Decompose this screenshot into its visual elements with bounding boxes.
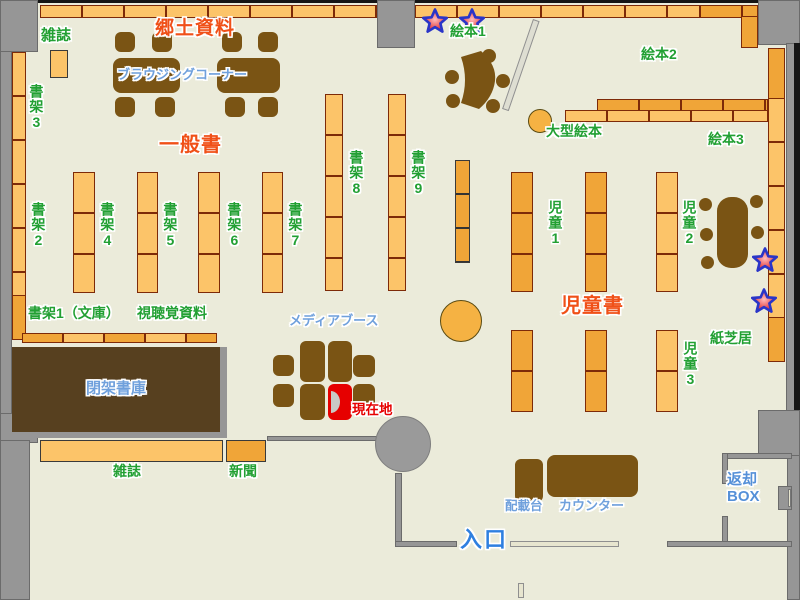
return-slot — [788, 489, 791, 507]
media-booth-label: メディアブース — [289, 314, 378, 328]
bookshelf-6 — [198, 172, 220, 293]
current-location-label: 現在地 — [352, 403, 393, 418]
round-table — [440, 300, 482, 342]
current-location-booth — [328, 384, 352, 420]
shelf9-label: 書架9 — [410, 150, 425, 197]
browsing-corner-label: ブラウジングコーナー — [117, 68, 247, 82]
wall-low-partition — [267, 436, 379, 441]
magazines-top-label: 雑誌 — [41, 28, 71, 45]
ehon1-label: 絵本1 — [450, 24, 486, 39]
magazine-shelf-top — [50, 50, 68, 78]
stool — [445, 70, 459, 84]
media-booth-seat — [273, 384, 294, 407]
shelf3-label: 書架3 — [28, 84, 43, 131]
children-books-label: 児童書 — [561, 295, 624, 317]
shelf2-label: 書架2 — [30, 202, 45, 249]
bookshelf-av-row — [22, 333, 217, 343]
wall-return-alcove-right — [787, 455, 800, 600]
current-location-seat — [331, 391, 340, 413]
bookshelf-left-col — [12, 52, 26, 297]
sorting-stand-label: 配載台 — [505, 500, 543, 514]
chair — [258, 97, 278, 117]
bookshelf-corner-hang — [741, 16, 758, 48]
bookshelf-4 — [73, 172, 95, 293]
bookshelf-8 — [325, 94, 343, 291]
children2-label: 児童2 — [681, 200, 696, 247]
wall-diagonal-partition — [502, 19, 540, 111]
bookshelf-7 — [262, 172, 283, 293]
children-shelf-1b — [585, 172, 607, 292]
stool — [751, 226, 764, 239]
audiovisual-label: 視聴覚資料 — [137, 306, 207, 321]
children-table — [717, 197, 748, 268]
library-floor-map: 閉架書庫 — [0, 0, 800, 600]
wall-top-middle — [377, 0, 415, 48]
chair — [155, 97, 175, 117]
star-icon — [752, 247, 778, 273]
stool — [486, 99, 500, 113]
wall-return-alcove-top — [722, 453, 792, 459]
star-icon — [422, 8, 448, 34]
media-booth-seat — [273, 355, 294, 376]
star-icon — [751, 288, 777, 314]
wall-entrance-right — [667, 541, 792, 547]
stool — [699, 198, 712, 211]
bookshelf-9 — [388, 94, 406, 291]
media-booth-seat — [300, 341, 325, 382]
shelf1-bunko-label: 書架1（文庫） — [28, 306, 120, 321]
children1-label: 児童1 — [547, 200, 562, 247]
shelf4-label: 書架4 — [99, 202, 114, 249]
general-books-label: 一般書 — [159, 134, 222, 156]
return-box-label: 返却 BOX — [727, 472, 760, 505]
entrance-sensor — [518, 583, 524, 598]
wall-entrance-vertical — [395, 473, 402, 547]
stool — [482, 49, 496, 63]
media-booth-seat — [328, 341, 352, 382]
stool — [701, 256, 714, 269]
bookshelf-right-col-bottom — [768, 317, 785, 362]
bookshelf-center-dark — [455, 160, 470, 263]
stool — [750, 195, 763, 208]
ehon2-label: 絵本2 — [641, 47, 677, 62]
counter-desk — [547, 455, 638, 497]
chair — [115, 32, 135, 52]
media-booth-seat — [353, 355, 375, 377]
chair — [115, 97, 135, 117]
wall-top-left-corner — [0, 0, 38, 52]
chair — [225, 97, 245, 117]
shelf6-label: 書架6 — [226, 202, 241, 249]
ehon3-label: 絵本3 — [708, 132, 744, 147]
magazines-bottom-label: 雑誌 — [113, 464, 141, 479]
bookshelf-ehon-row-lower — [565, 110, 768, 122]
wall-top-right-corner — [758, 0, 800, 45]
chair — [258, 32, 278, 52]
wall-entrance-left — [395, 541, 457, 547]
closed-stacks-label: 閉架書庫 — [86, 381, 146, 398]
media-booth-seat — [300, 384, 325, 420]
bookshelf-right-col-top — [768, 48, 785, 99]
large-ehon-label: 大型絵本 — [546, 124, 602, 139]
children-shelf-1a-low — [511, 330, 533, 412]
children3-label: 児童3 — [682, 341, 697, 388]
stool — [446, 94, 460, 108]
kamishibai-label: 紙芝居 — [710, 331, 752, 346]
wall-bottom-left2 — [0, 440, 30, 600]
bookshelf-top-row-left — [40, 5, 377, 18]
magazine-shelf-bottom — [40, 440, 223, 462]
newspaper-shelf — [226, 440, 266, 462]
closed-stacks-room: 閉架書庫 — [12, 347, 227, 438]
newspaper-label: 新聞 — [229, 464, 257, 479]
children-shelf-1b-low — [585, 330, 607, 412]
stool — [700, 228, 713, 241]
bookshelf-top-row-right — [415, 5, 700, 18]
shelf5-label: 書架5 — [162, 202, 177, 249]
shelf7-label: 書架7 — [287, 202, 302, 249]
children-shelf-2 — [656, 172, 678, 292]
shelf8-label: 書架8 — [348, 150, 363, 197]
entrance-door — [510, 541, 619, 547]
local-materials-label: 郷土資料 — [155, 19, 235, 40]
pillar-round — [375, 416, 431, 472]
stool — [496, 74, 510, 88]
children-shelf-1a — [511, 172, 533, 292]
counter-label: カウンター — [559, 499, 624, 513]
bookshelf-right-col — [768, 98, 785, 318]
wall-right-block — [758, 410, 800, 458]
entrance-label: 入口 — [460, 528, 508, 552]
sorting-stand — [515, 459, 543, 502]
bookshelf-5 — [137, 172, 158, 293]
children-shelf-3 — [656, 330, 678, 412]
